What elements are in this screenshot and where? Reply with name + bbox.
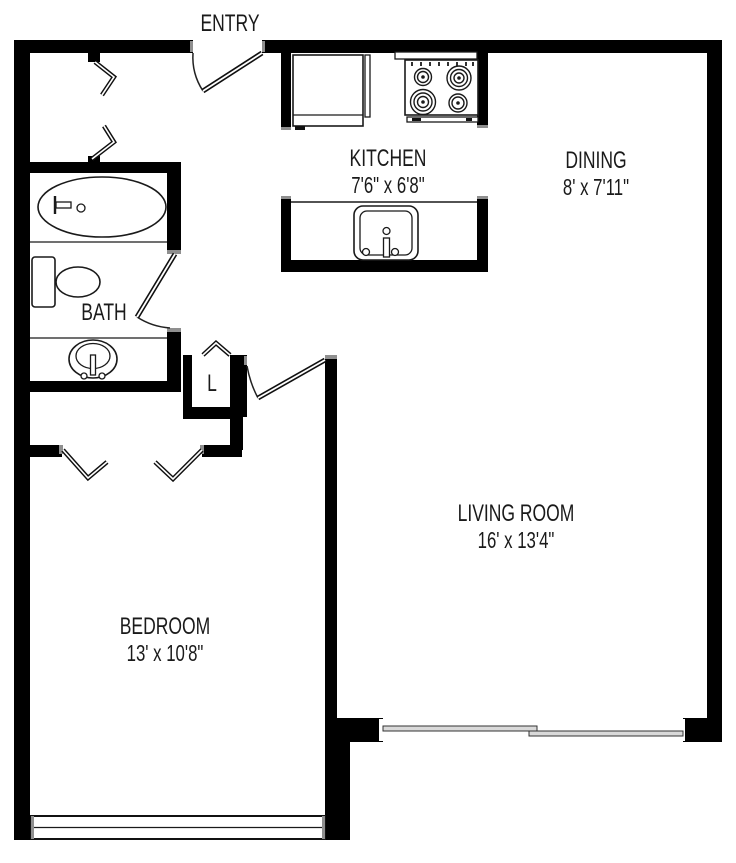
- dining-dimensions: 8' x 7'11": [516, 174, 677, 200]
- kitchen-sink: [291, 202, 477, 260]
- refrigerator: [293, 55, 363, 130]
- entry-label: ENTRY: [150, 11, 311, 37]
- entry-door: [193, 53, 262, 91]
- sliding-glass-door: [379, 719, 685, 741]
- linen-closet-bifold-door: [203, 343, 230, 355]
- bedroom-name: BEDROOM: [85, 614, 246, 640]
- burner-top-left: [415, 69, 432, 86]
- floor-plan: ENTRY KITCHEN 7'6" x 6'8" DINING 8' x 7'…: [0, 0, 736, 863]
- entry-closet-bifold-doors: [92, 62, 114, 159]
- floor-plan-drawing: [0, 0, 736, 863]
- dining-label: DINING 8' x 7'11": [516, 148, 677, 200]
- kitchen-label: KITCHEN 7'6" x 6'8": [308, 146, 469, 198]
- linen-closet-label: L: [132, 371, 293, 397]
- bath-label: BATH: [24, 300, 185, 326]
- living-room-name: LIVING ROOM: [436, 501, 597, 527]
- living-room-dimensions: 16' x 13'4": [436, 527, 597, 553]
- kitchen-name: KITCHEN: [308, 146, 469, 172]
- kitchen-dimensions: 7'6" x 6'8": [308, 172, 469, 198]
- bathtub: [30, 177, 167, 242]
- bedroom-closet-bifold-doors: [63, 450, 202, 479]
- bedroom-label: BEDROOM 13' x 10'8": [85, 614, 246, 666]
- burner-bottom-left: [411, 90, 436, 115]
- living-room-label: LIVING ROOM 16' x 13'4": [436, 501, 597, 553]
- burner-top-right: [447, 66, 471, 90]
- stove: [405, 60, 478, 122]
- bedroom-window: [31, 816, 325, 839]
- burner-bottom-right: [449, 94, 467, 112]
- bedroom-dimensions: 13' x 10'8": [85, 640, 246, 666]
- dining-name: DINING: [516, 148, 677, 174]
